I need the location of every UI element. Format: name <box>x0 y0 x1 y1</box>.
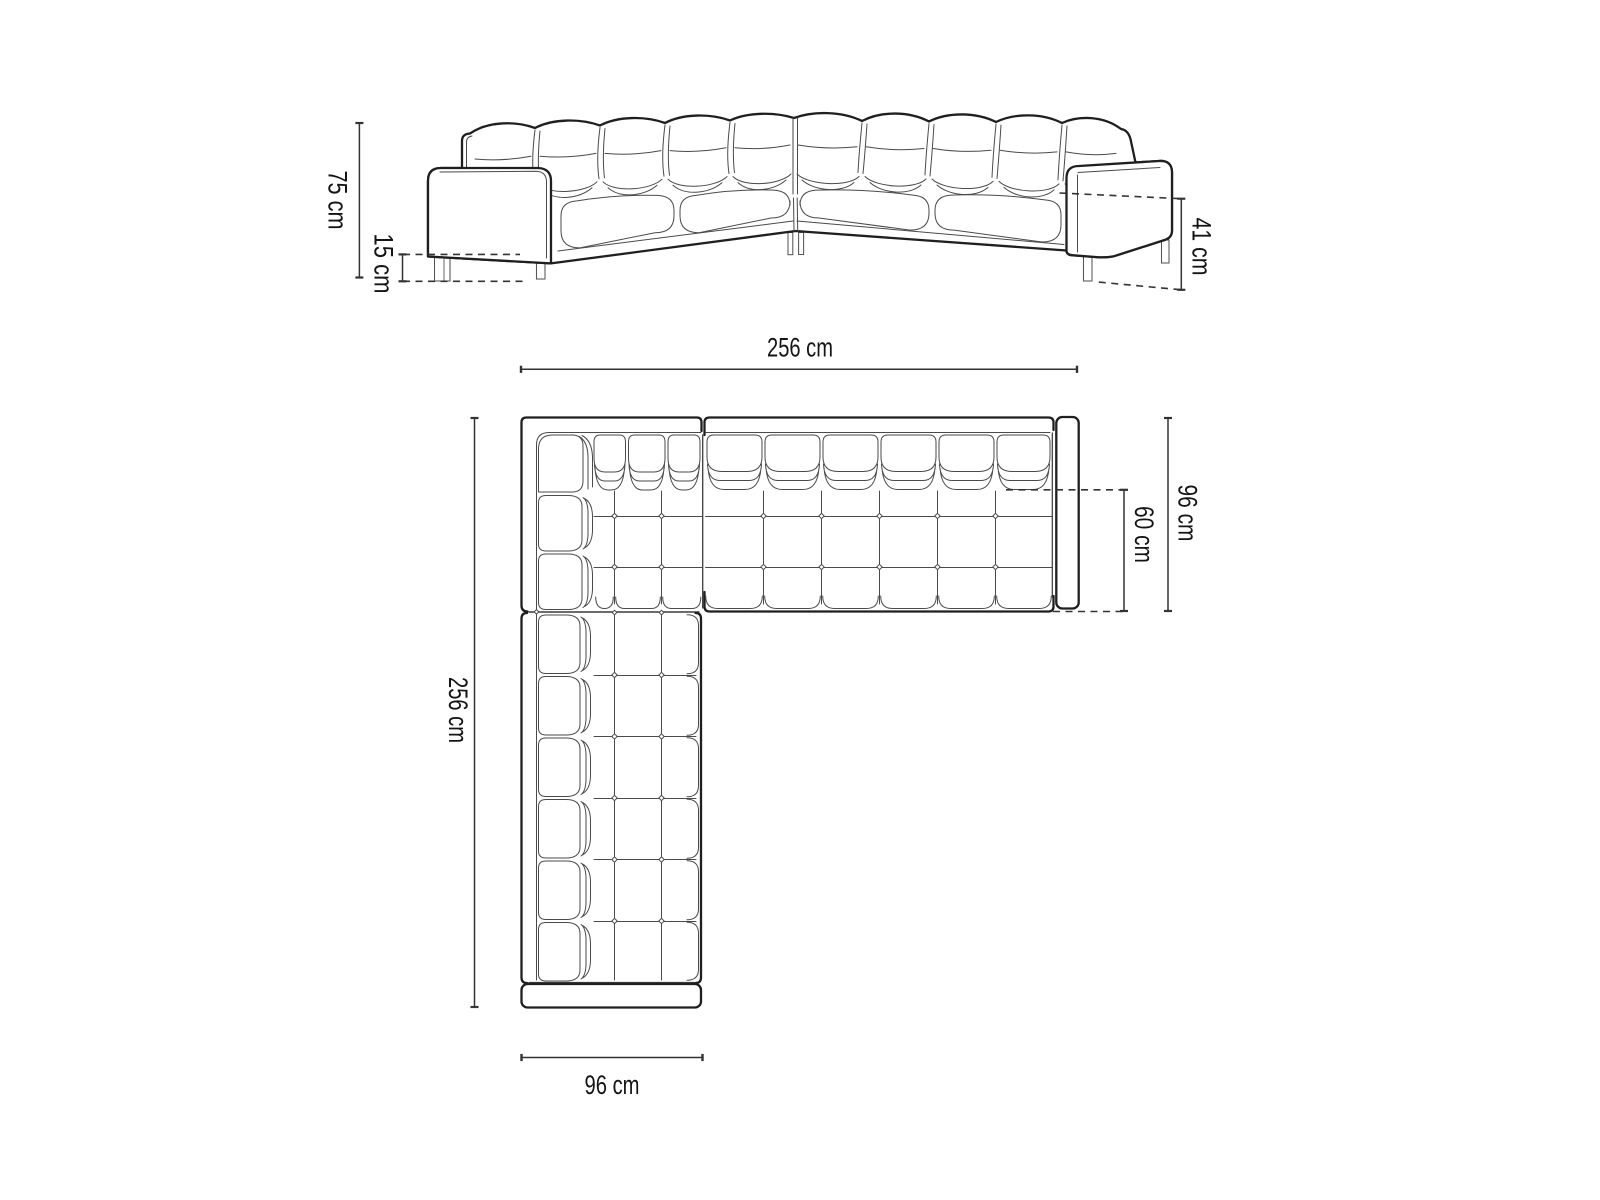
svg-text:15 cm: 15 cm <box>369 234 399 294</box>
svg-text:256 cm: 256 cm <box>443 677 473 743</box>
svg-text:60 cm: 60 cm <box>1129 506 1159 563</box>
svg-text:256 cm: 256 cm <box>767 333 833 363</box>
svg-text:41 cm: 41 cm <box>1187 218 1217 276</box>
svg-text:75 cm: 75 cm <box>323 171 353 230</box>
svg-text:96 cm: 96 cm <box>585 1070 640 1100</box>
svg-text:96 cm: 96 cm <box>1173 485 1203 542</box>
